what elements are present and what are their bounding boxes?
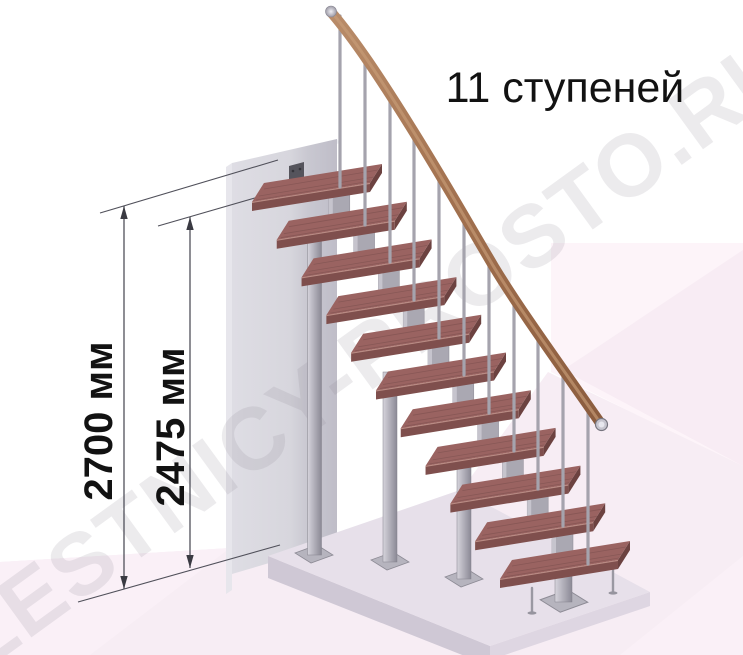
support-column — [383, 372, 397, 562]
dimension-label-total-height: 2700 мм — [77, 341, 121, 500]
handrail-top-cap — [326, 6, 337, 17]
leg-foot — [609, 591, 618, 594]
steps-count-label: 11 ступеней — [446, 64, 685, 112]
staircase-diagram: LESTNICY-PROSTO.RU 2700 мм 2475 мм — [0, 0, 743, 655]
handrail-end-cap-center — [599, 422, 605, 428]
leg-foot — [528, 611, 537, 614]
wall-left-face — [226, 163, 232, 594]
scene-svg: LESTNICY-PROSTO.RU 2700 мм 2475 мм — [0, 0, 743, 655]
bracket-bolt — [292, 170, 295, 173]
dimension-label-to-top-step: 2475 мм — [149, 347, 193, 506]
bracket-bolt — [299, 168, 302, 171]
